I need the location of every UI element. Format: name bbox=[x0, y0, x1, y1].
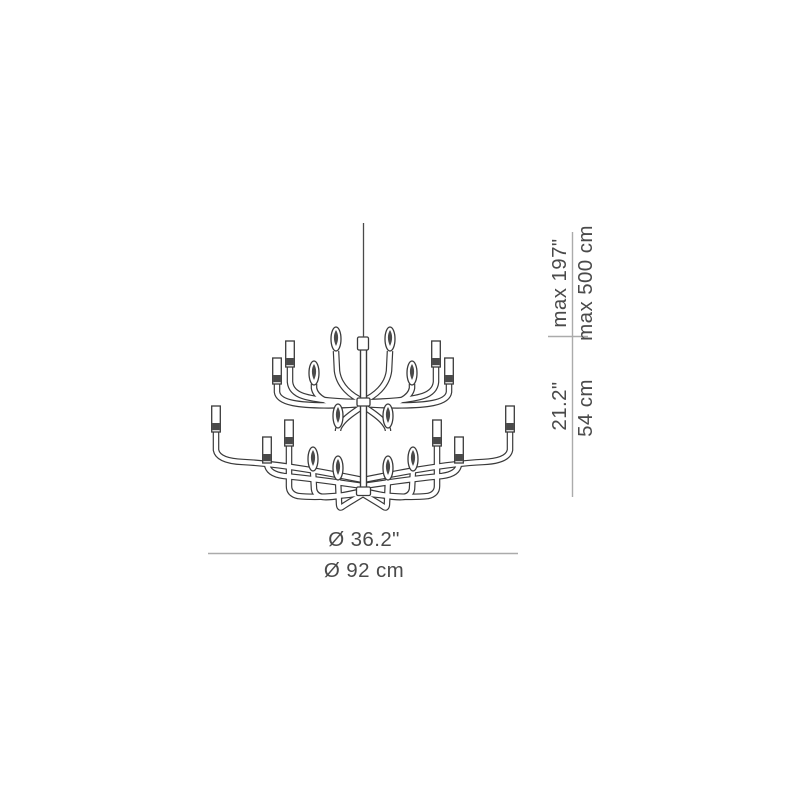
chandelier-dimension-diagram: max 197" max 500 cm 21.2" 54 cm Ø 36.2" … bbox=[0, 0, 800, 800]
bulb-icon bbox=[407, 361, 417, 385]
socket-tip-icon bbox=[455, 437, 464, 463]
label-fixture-height-inches: 21.2" bbox=[548, 381, 571, 430]
bulb-icon bbox=[385, 327, 395, 351]
socket-tip-icon bbox=[273, 358, 282, 384]
bulb-icon bbox=[309, 361, 319, 385]
dimension-drawing-page: max 197" max 500 cm 21.2" 54 cm Ø 36.2" … bbox=[0, 0, 800, 800]
label-suspension-height-inches: max 197" bbox=[548, 238, 571, 327]
dimension-lines bbox=[208, 232, 588, 554]
label-suspension-height-cm: max 500 cm bbox=[574, 225, 597, 341]
socket-tip-icon bbox=[433, 420, 442, 446]
bulb-icon bbox=[383, 456, 393, 480]
socket-tip-icon bbox=[432, 341, 441, 367]
bulb-icon bbox=[331, 327, 341, 351]
bulb-icon bbox=[383, 404, 393, 428]
bulb-icon bbox=[308, 447, 318, 471]
label-fixture-height-cm: 54 cm bbox=[574, 379, 597, 437]
bulb-icon bbox=[333, 456, 343, 480]
socket-tip-icon bbox=[506, 406, 515, 432]
label-diameter-inches: Ø 36.2" bbox=[328, 528, 400, 551]
label-diameter-cm: Ø 92 cm bbox=[324, 559, 404, 582]
bulb-icon bbox=[408, 447, 418, 471]
bulb-icon bbox=[333, 404, 343, 428]
socket-tip-icon bbox=[285, 420, 294, 446]
socket-tip-icon bbox=[212, 406, 221, 432]
socket-tip-icon bbox=[445, 358, 454, 384]
socket-tip-icon bbox=[286, 341, 295, 367]
socket-tip-icon bbox=[263, 437, 272, 463]
